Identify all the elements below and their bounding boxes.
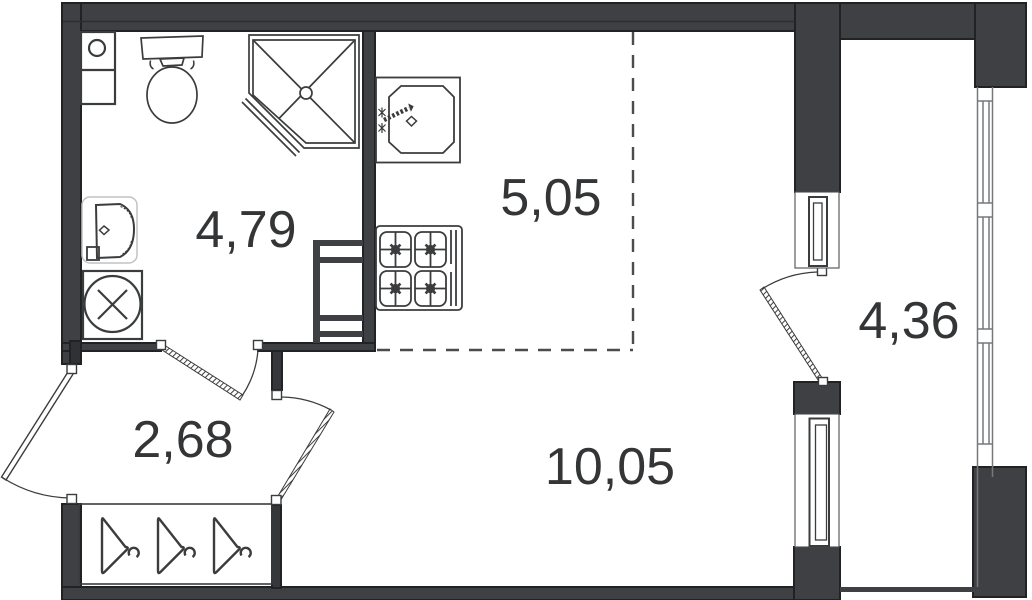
svg-text:2,68: 2,68 [132, 411, 233, 469]
svg-text:4,79: 4,79 [195, 201, 296, 259]
svg-text:5,05: 5,05 [500, 169, 601, 227]
svg-text:4,36: 4,36 [858, 292, 959, 350]
svg-text:10,05: 10,05 [545, 438, 675, 496]
